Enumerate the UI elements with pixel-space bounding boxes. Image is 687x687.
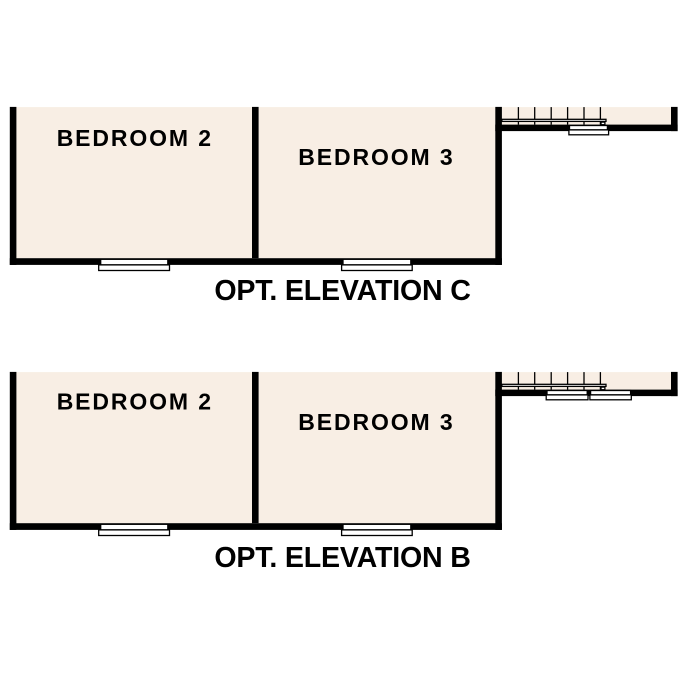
svg-text:BEDROOM 2: BEDROOM 2 xyxy=(57,388,213,414)
svg-text:OPT. ELEVATION B: OPT. ELEVATION B xyxy=(214,542,470,574)
svg-text:BEDROOM 3: BEDROOM 3 xyxy=(298,144,454,170)
svg-text:BEDROOM 2: BEDROOM 2 xyxy=(57,125,213,151)
svg-text:OPT. ELEVATION C: OPT. ELEVATION C xyxy=(214,275,470,307)
svg-text:BEDROOM 3: BEDROOM 3 xyxy=(298,409,454,435)
